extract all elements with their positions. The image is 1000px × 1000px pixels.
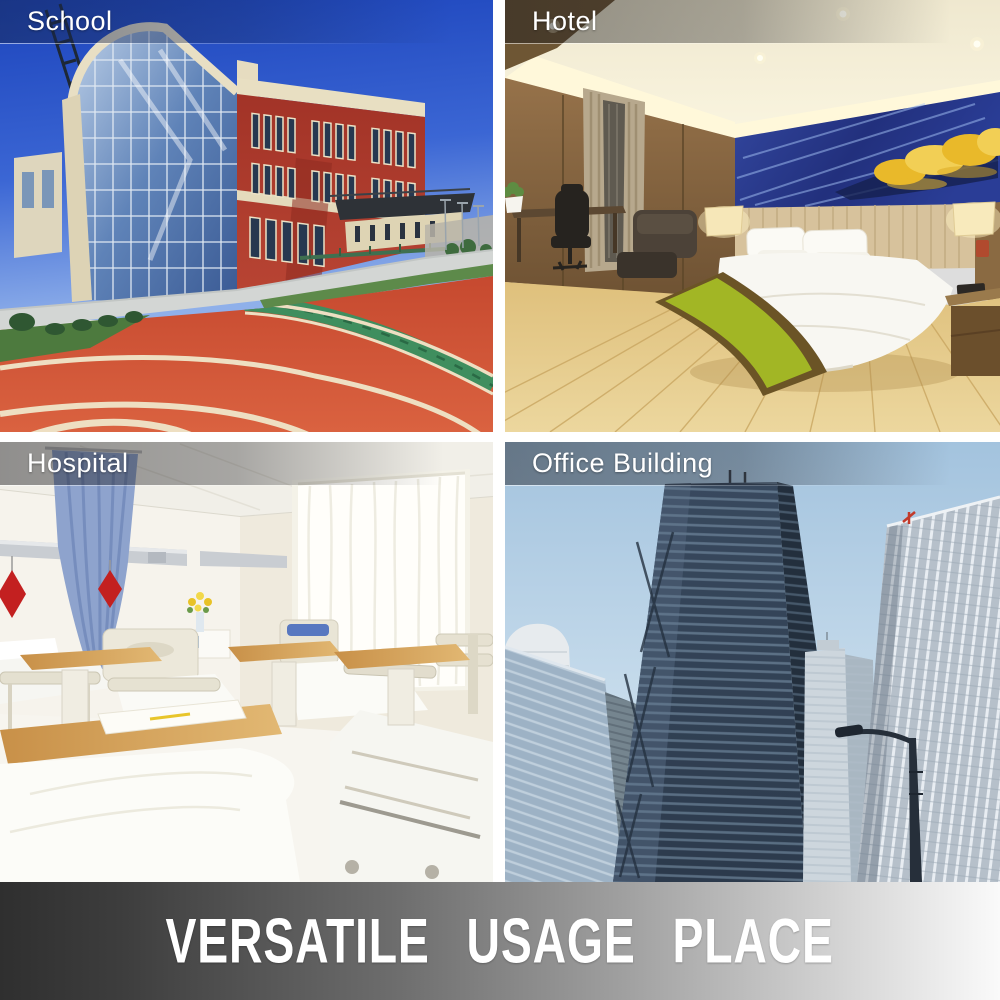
foreground-bed [0,748,300,882]
bedside-lamp-left [698,206,750,238]
hospital-photo: Hospital [0,442,493,882]
collage: School [0,0,1000,1000]
hospital-label: Hospital [27,448,129,479]
school-label: School [27,6,113,37]
office-label-band: Office Building [505,442,1000,485]
hotel-photo: Hotel [505,0,1000,432]
hospital-scene [0,442,493,882]
office-photo: Office Building [505,442,1000,882]
school-label-band: School [0,0,493,43]
bedside-lamp-right [946,202,1000,238]
nightstand [945,283,1000,376]
hotel-scene [505,0,1000,432]
caption-text: VERSATILE USAGE PLACE [166,905,834,977]
hospital-label-band: Hospital [0,442,493,485]
wall-switch [976,240,989,257]
school-photo: School [0,0,493,432]
hotel-label-band: Hotel [505,0,1000,43]
hotel-label: Hotel [532,6,598,37]
school-scene [0,0,493,432]
caption-banner: VERSATILE USAGE PLACE [0,882,1000,1000]
office-scene [505,442,1000,882]
office-label: Office Building [532,448,713,479]
